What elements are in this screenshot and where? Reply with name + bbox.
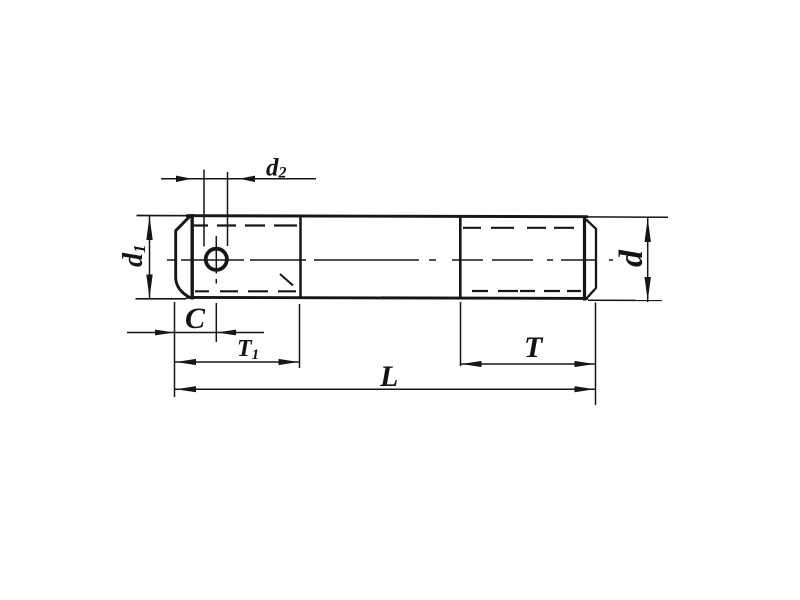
svg-text:T: T bbox=[524, 331, 544, 364]
svg-text:d2: d2 bbox=[266, 155, 287, 182]
svg-text:d: d bbox=[613, 249, 650, 267]
svg-text:C: C bbox=[185, 302, 206, 335]
svg-text:T1: T1 bbox=[237, 336, 259, 363]
svg-text:d1: d1 bbox=[118, 245, 149, 268]
svg-text:L: L bbox=[379, 360, 398, 393]
